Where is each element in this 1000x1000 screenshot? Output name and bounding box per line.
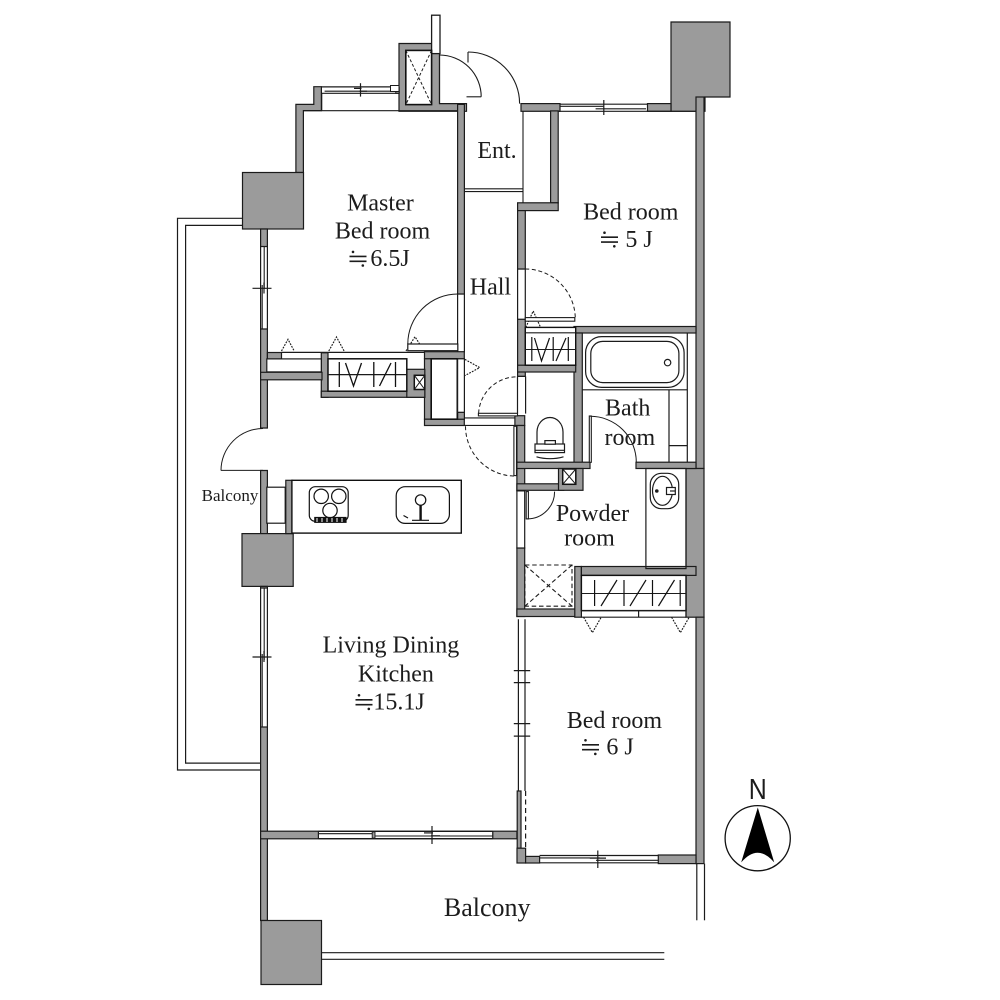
svg-text:room: room (604, 425, 655, 451)
svg-text:5 J: 5 J (625, 227, 652, 253)
svg-text:Balcony: Balcony (202, 486, 259, 505)
svg-text:Bed room: Bed room (567, 708, 663, 734)
svg-text:Bed room: Bed room (335, 218, 431, 244)
svg-text:Hall: Hall (470, 275, 512, 301)
svg-text:6 J: 6 J (606, 734, 633, 760)
svg-text:Kitchen: Kitchen (358, 662, 434, 688)
svg-text:Bath: Bath (605, 395, 650, 421)
svg-text:N: N (749, 774, 767, 806)
svg-text:6.5J: 6.5J (370, 246, 409, 272)
svg-text:Living Dining: Living Dining (323, 633, 460, 659)
svg-text:Powder: Powder (556, 501, 629, 527)
svg-text:Bed room: Bed room (583, 200, 679, 226)
svg-text:room: room (564, 525, 615, 551)
svg-text:Balcony: Balcony (444, 893, 531, 922)
svg-text:15.1J: 15.1J (373, 689, 424, 715)
svg-text:Master: Master (347, 191, 414, 217)
svg-text:Ent.: Ent. (477, 138, 516, 164)
